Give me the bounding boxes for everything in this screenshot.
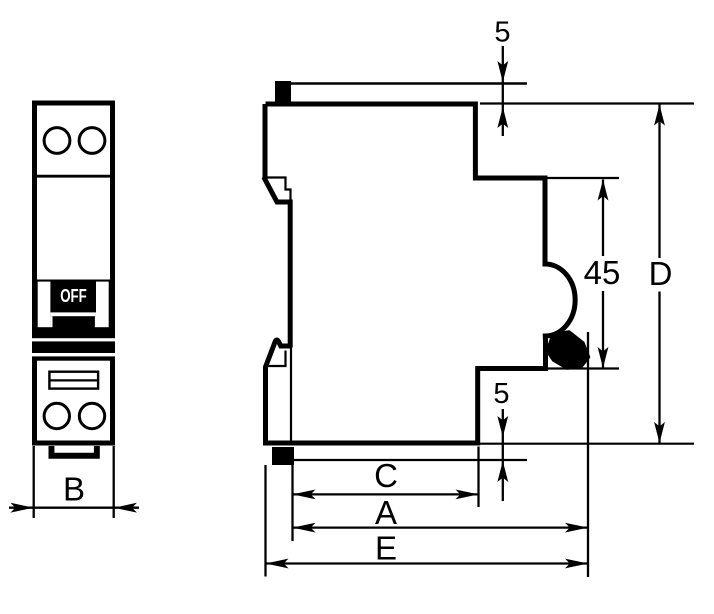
svg-text:5: 5 <box>494 17 510 49</box>
svg-text:C: C <box>374 457 398 494</box>
svg-text:45: 45 <box>584 254 621 291</box>
svg-text:E: E <box>375 530 397 567</box>
svg-text:D: D <box>649 255 673 292</box>
svg-text:A: A <box>375 494 397 531</box>
svg-text:B: B <box>63 471 85 508</box>
svg-text:OFF: OFF <box>60 286 87 307</box>
svg-text:5: 5 <box>493 378 509 410</box>
